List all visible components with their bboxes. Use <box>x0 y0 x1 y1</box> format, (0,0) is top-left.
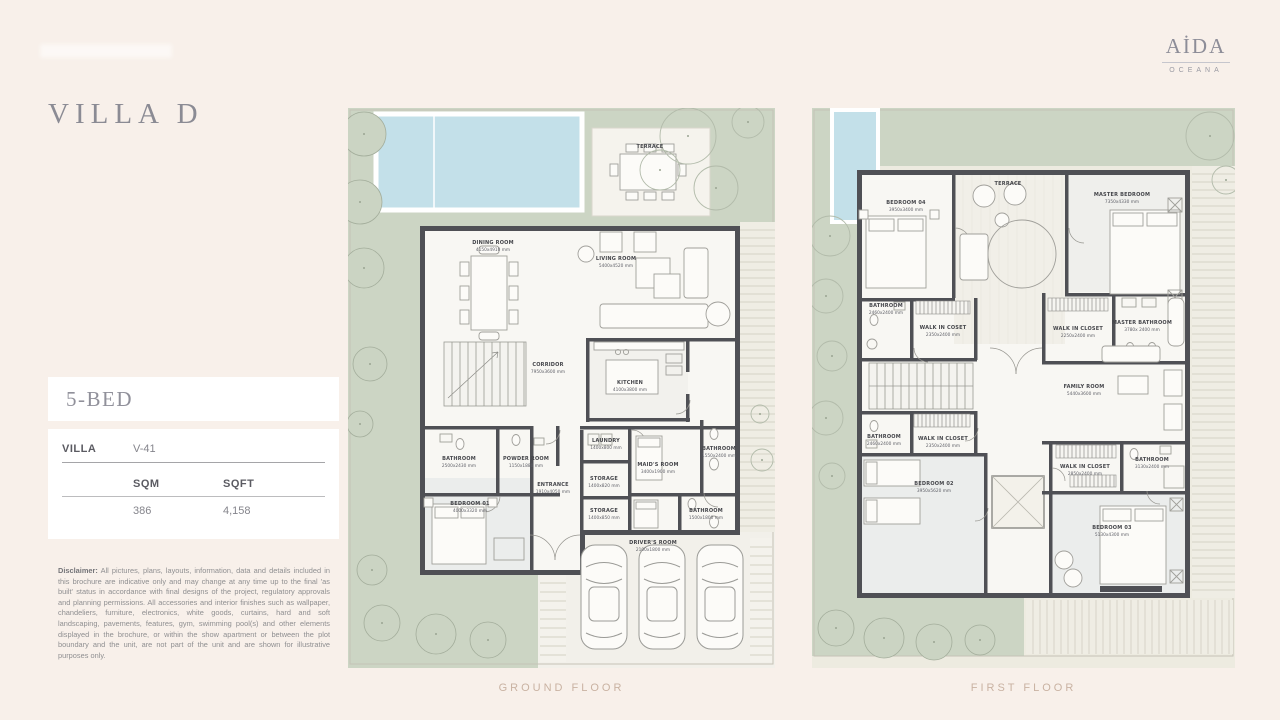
room-dims: 2500x2430 mm <box>442 463 476 469</box>
room-label: MAID'S ROOM <box>637 462 678 468</box>
sqft-header: SQFT <box>223 478 325 490</box>
sqm-value: 386 <box>133 505 223 517</box>
room-label: KITCHEN <box>617 380 643 386</box>
bedrooms-card: 5-BED <box>48 377 339 421</box>
room-label: BATHROOM <box>442 456 476 462</box>
room-label: MASTER BEDROOM <box>1094 192 1150 198</box>
deck-strip-right <box>1192 166 1235 598</box>
sqm-header: SQM <box>133 478 223 490</box>
room-label: ENTRANCE <box>537 482 569 488</box>
villa-value: V-41 <box>133 443 223 455</box>
deck-strip-right <box>740 222 775 532</box>
unit-details-card: VILLA V-41 SQM SQFT 386 4,158 <box>48 429 339 539</box>
area-value-row: 386 4,158 <box>62 497 325 517</box>
room-dims: 5130x4300 mm <box>1095 532 1129 538</box>
outdoor-terrace <box>592 128 710 216</box>
room-label: STORAGE <box>590 508 618 514</box>
room-dims: 4100x3800 mm <box>613 387 647 393</box>
void-shaft <box>992 476 1044 528</box>
room-label: STORAGE <box>590 476 618 482</box>
room-label: POWDER ROOM <box>503 456 549 462</box>
room-label: BEDROOM 01 <box>450 501 490 507</box>
room-dims: 2850x2400 mm <box>1068 471 1102 477</box>
room-dims: 2350x2400 mm <box>926 332 960 338</box>
room-label: WALK IN CLOSET <box>918 436 968 442</box>
room-label: WALK IN CLOSET <box>1053 326 1103 332</box>
faint-watermark <box>40 44 172 58</box>
room-dims: 5400x4520 mm <box>599 263 633 269</box>
room-dims: 1910x4050 mm <box>536 489 570 495</box>
room-dims: 2460x2400 mm <box>867 441 901 447</box>
room-dims: 7950x3600 mm <box>531 369 565 375</box>
room-dims: 1400x850 mm <box>588 515 619 521</box>
disclaimer-text: Disclaimer: All pictures, plans, layouts… <box>58 566 330 661</box>
room-label: BEDROOM 04 <box>886 200 926 206</box>
room-label: BATHROOM <box>867 434 901 440</box>
driveway-louver-right <box>750 538 772 662</box>
drivers-bed-icon <box>634 500 658 528</box>
room-dims: 4150x4910 mm <box>476 247 510 253</box>
deck-bottom-right <box>1026 600 1233 654</box>
car-icon <box>697 545 743 649</box>
room-label: FAMILY ROOM <box>1064 384 1105 390</box>
brand-name: AİDA <box>1160 34 1232 59</box>
room-label: LAUNDRY <box>592 438 620 444</box>
room-dims: 3780x 2400 mm <box>1124 327 1160 333</box>
room-dims: 1150x1880 mm <box>509 463 543 469</box>
room-dims: 1500x1800 mm <box>689 515 723 521</box>
room-label: DINING ROOM <box>472 240 514 246</box>
page-title: VILLA D <box>48 98 204 131</box>
room-label: TERRACE <box>637 144 664 150</box>
room-dims: 4000x3320 mm <box>453 508 487 514</box>
area-header-row: SQM SQFT <box>62 463 325 497</box>
brand-subname: OCEANA <box>1160 67 1232 74</box>
room-dims: 3950x3400 mm <box>889 207 923 213</box>
room-label: BATHROOM <box>689 508 723 514</box>
disclaimer-label: Disclaimer: <box>58 566 98 575</box>
room-dims: 2100x1800 mm <box>636 547 670 553</box>
room-dims: 2250x2400 mm <box>1061 333 1095 339</box>
staircase <box>869 363 973 409</box>
room-label: DRIVER'S ROOM <box>629 540 677 546</box>
room-label: MASTER BATHROOM <box>1112 320 1172 326</box>
villa-row: VILLA V-41 <box>62 429 325 463</box>
room-label: BATHROOM <box>869 303 903 309</box>
staircase <box>444 342 526 406</box>
room-label: LIVING ROOM <box>596 256 636 262</box>
first-floor-caption: FIRST FLOOR <box>812 682 1235 694</box>
bedrooms-label: 5-BED <box>66 387 133 412</box>
room-dims: 3950x5620 mm <box>917 488 951 494</box>
master-bed-icon <box>1110 198 1182 304</box>
room-label: WALK IN COSET <box>920 325 967 331</box>
room-dims: 3130x2400 mm <box>1135 464 1169 470</box>
logo-divider <box>1162 62 1230 63</box>
room-dims: 5440x3600 mm <box>1067 391 1101 397</box>
villa-label: VILLA <box>62 443 133 455</box>
room-dims: 7350x4330 mm <box>1105 199 1139 205</box>
room-label: BEDROOM 03 <box>1092 525 1132 531</box>
swimming-pool <box>376 114 582 210</box>
car-icon <box>639 545 685 649</box>
terrace-table-icon <box>620 154 676 190</box>
brand-logo: AİDA OCEANA <box>1160 34 1232 74</box>
room-dims: 3400x1900 mm <box>641 469 675 475</box>
room-label: TERRACE <box>995 181 1022 187</box>
room-label: BATHROOM <box>702 446 736 452</box>
ground-floor-caption: GROUND FLOOR <box>348 682 775 694</box>
room-dims: 1400x820 mm <box>588 483 619 489</box>
sqft-value: 4,158 <box>223 505 325 517</box>
first-floor-plan: TERRACE BEDROOM 04 3950x3400 mm MASTER B… <box>812 108 1235 668</box>
room-dims: 2460x2400 mm <box>869 310 903 316</box>
disclaimer-body: All pictures, plans, layouts, informatio… <box>58 566 330 660</box>
ground-floor-plan: TERRACE DINING ROOM 4150x4910 mm LIVING … <box>348 108 775 668</box>
car-icon <box>581 545 627 649</box>
room-label: CORRIDOR <box>532 362 563 368</box>
room-label: BEDROOM 02 <box>914 481 954 487</box>
room-dims: 1550x2400 mm <box>702 453 736 459</box>
room-dims: 1400x800 mm <box>590 445 621 451</box>
room-label: BATHROOM <box>1135 457 1169 463</box>
room-dims: 2350x2400 mm <box>926 443 960 449</box>
room-label: WALK IN CLOSET <box>1060 464 1110 470</box>
